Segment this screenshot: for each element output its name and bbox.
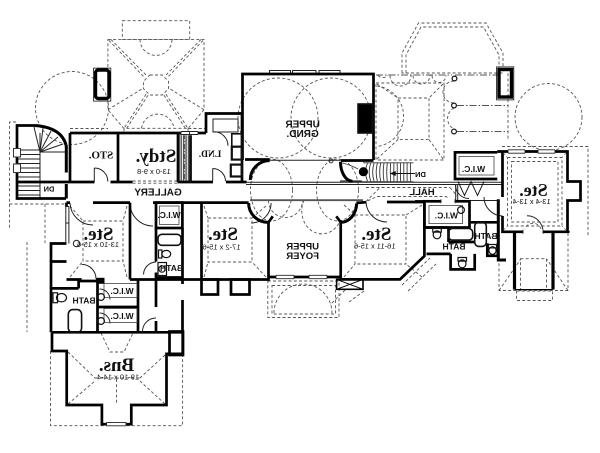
svg-text:BATH: BATH — [73, 296, 96, 306]
svg-text:DN: DN — [415, 170, 426, 179]
svg-text:HALL: HALL — [409, 187, 435, 198]
svg-text:13-0 x 9-8: 13-0 x 9-8 — [137, 167, 171, 176]
svg-text:GALLERY: GALLERY — [134, 188, 182, 199]
svg-text:W.I.C.: W.I.C. — [462, 164, 485, 174]
svg-text:W.I.C.: W.I.C. — [157, 210, 180, 220]
svg-text:LND.: LND. — [199, 150, 221, 160]
svg-text:19-10 x 14-4: 19-10 x 14-4 — [97, 373, 139, 382]
svg-text:STO.: STO. — [88, 150, 113, 162]
svg-text:DN: DN — [44, 185, 55, 194]
svg-text:16-11 x 15-6: 16-11 x 15-6 — [354, 242, 396, 251]
svg-text:W.I.C.: W.I.C. — [435, 211, 458, 221]
svg-text:BATH: BATH — [475, 231, 498, 241]
svg-text:17-2 x 15-6: 17-2 x 15-6 — [203, 243, 241, 252]
svg-text:W.I.C.: W.I.C. — [110, 286, 133, 296]
svg-text:BATH: BATH — [160, 263, 183, 273]
svg-text:13-4 x 13-4: 13-4 x 13-4 — [513, 197, 551, 206]
svg-text:13-10 x 15-6: 13-10 x 15-6 — [77, 240, 119, 249]
svg-text:W.I.C.: W.I.C. — [110, 311, 133, 321]
svg-text:FOYER: FOYER — [286, 251, 319, 262]
svg-text:BATH: BATH — [443, 241, 466, 251]
svg-text:GRND.: GRND. — [286, 129, 318, 140]
svg-text:Stdy.: Stdy. — [136, 146, 177, 167]
